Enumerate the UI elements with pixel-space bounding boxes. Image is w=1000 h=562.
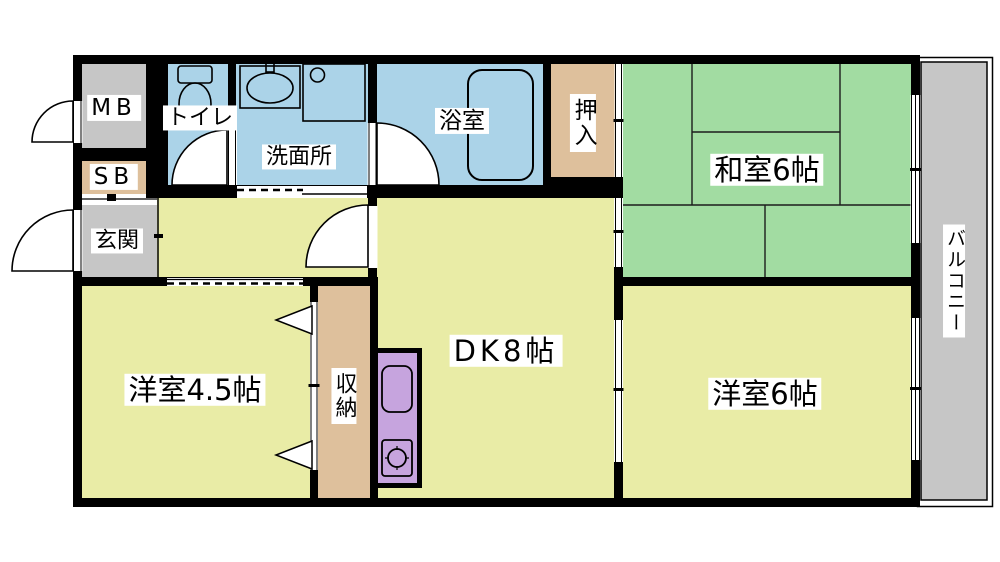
washitsu-window-tick — [910, 168, 921, 171]
wall-bottom — [73, 498, 920, 507]
entrance-door-swing-icon — [12, 210, 73, 271]
wall-bathroom-oshiire — [543, 55, 551, 185]
wall-corridor-stub-top — [368, 198, 377, 206]
room-label-genkan: 玄関 — [91, 228, 143, 253]
room-label-mb: MB — [87, 95, 141, 121]
room-label-washroom: 洗面所 — [262, 144, 336, 169]
dk-door-gap — [368, 206, 378, 268]
floor-plan-canvas — [0, 0, 1000, 562]
washroom-sliding-door-icon — [237, 186, 367, 198]
room-label-bathroom: 浴室 — [435, 108, 489, 134]
washitsu-slider-tick — [614, 230, 624, 233]
room-label-sb: SB — [90, 164, 138, 190]
room-label-western-45: 洋室4.5帖 — [124, 374, 265, 406]
room-label-toilet: トイレ — [163, 105, 237, 130]
genkan-step-tick — [107, 194, 116, 201]
room-label-balcony: バルコニー — [943, 225, 965, 338]
wall-mb-sb — [82, 148, 146, 161]
wall-oshiire-bottom — [545, 177, 623, 198]
wall-top — [73, 55, 920, 64]
wall-storage-stub-top — [310, 286, 318, 302]
w6-window-tick — [910, 387, 921, 390]
room-label-dk: DK8帖 — [450, 335, 563, 367]
storage-slider-tick — [309, 384, 320, 387]
floor-plan: MB SB 玄関 トイレ 洗面所 浴室 押入 和室6帖 DK8帖 洋室4.5帖 … — [0, 0, 1000, 562]
wall-storage-stub-bottom — [310, 470, 318, 498]
mb-door-swing-icon — [32, 101, 73, 142]
room-label-storage: 収納 — [331, 368, 356, 424]
wall-washroom-bathroom — [368, 55, 377, 123]
room-label-washitsu: 和室6帖 — [710, 154, 823, 186]
room-label-western-6: 洋室6帖 — [708, 378, 821, 410]
wall-washitsu-bottom — [614, 277, 911, 286]
wall-dk-w6-top — [614, 267, 623, 320]
genkan-edge-tick — [154, 234, 163, 238]
wall-dk-w6-bottom — [614, 462, 623, 498]
room-label-oshiire: 押入 — [570, 94, 596, 152]
oshiire-fusuma-tick — [614, 119, 624, 122]
w6-slider-tick — [614, 388, 624, 391]
